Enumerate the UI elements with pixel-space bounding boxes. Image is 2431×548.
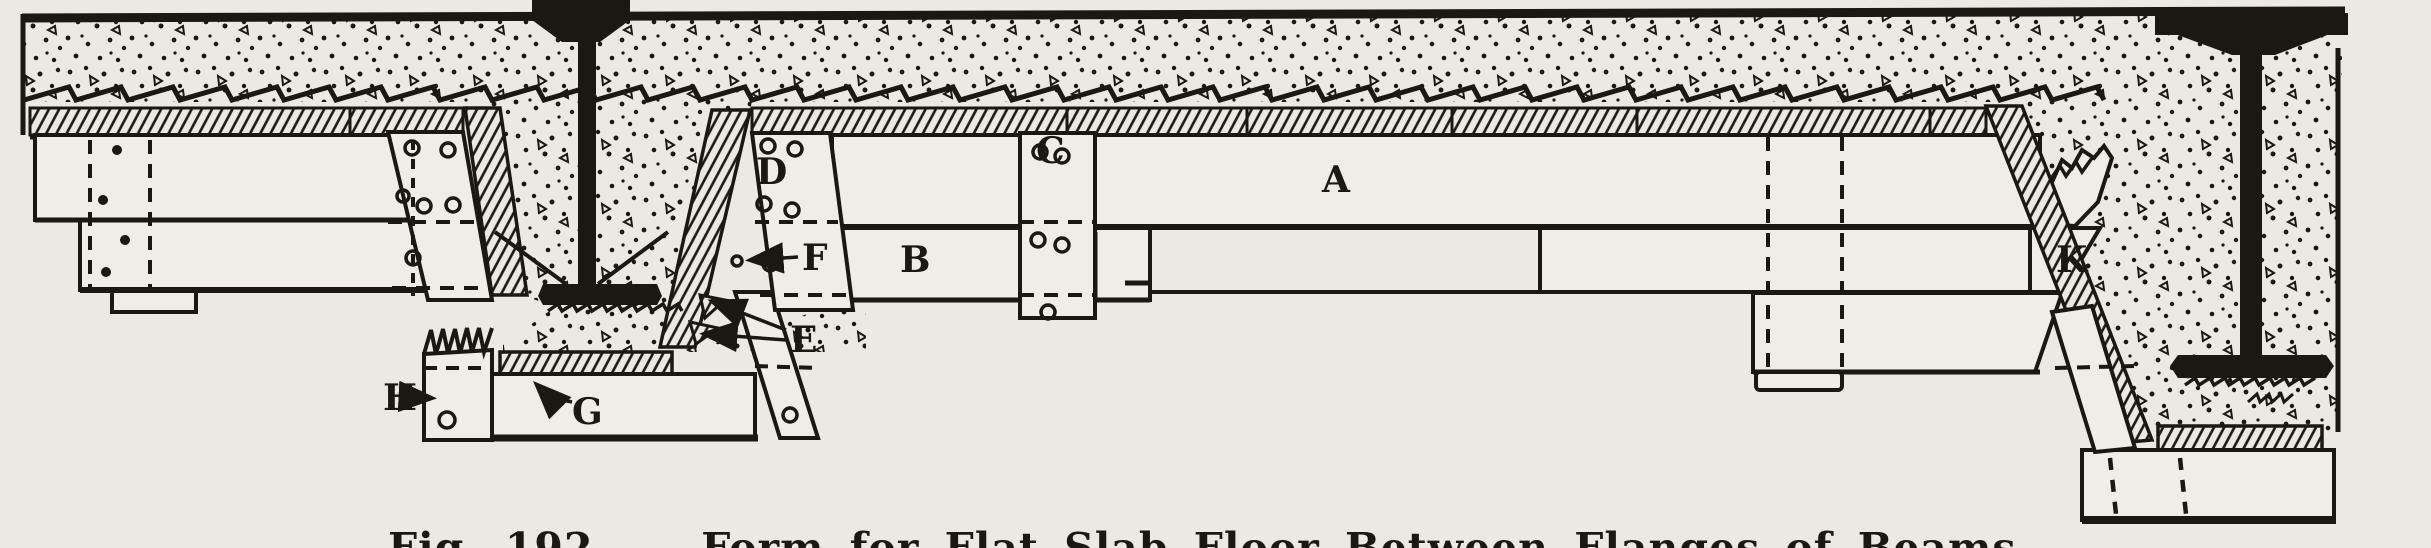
right-sill	[2082, 450, 2334, 520]
lagging-boards	[30, 108, 1986, 137]
beam-bottom-board	[492, 374, 755, 438]
soffit-board	[500, 352, 672, 374]
label-c: C	[1036, 130, 1065, 172]
stringer-b	[832, 227, 1150, 300]
label-f: F	[802, 237, 828, 279]
formwork-section-diagram: A B C D E F G H K	[0, 0, 2431, 548]
upper-ledger	[1540, 228, 2030, 292]
label-a: A	[1321, 159, 1351, 201]
broken-post-h	[424, 350, 492, 440]
label-g: G	[572, 391, 603, 433]
hanger-foot-block	[1756, 372, 1842, 390]
left-lower-ledger	[80, 220, 460, 290]
right-soffit-board	[2158, 426, 2322, 450]
figure-caption: Fig. 192. — Form for Flat Slab Floor Bet…	[388, 524, 2288, 548]
label-e: E	[790, 319, 817, 361]
book-page: A B C D E F G H K Fig. 192. — Form for F…	[0, 0, 2431, 548]
break-zigzag	[424, 328, 492, 354]
left-foot-block	[112, 290, 196, 312]
stringer-a	[832, 135, 2040, 227]
label-d: D	[756, 151, 787, 193]
main-span-framing	[752, 133, 2112, 390]
label-b: B	[900, 239, 930, 281]
label-k: K	[2056, 239, 2089, 281]
leader-h	[410, 397, 430, 398]
lower-ledger	[1753, 293, 2062, 372]
